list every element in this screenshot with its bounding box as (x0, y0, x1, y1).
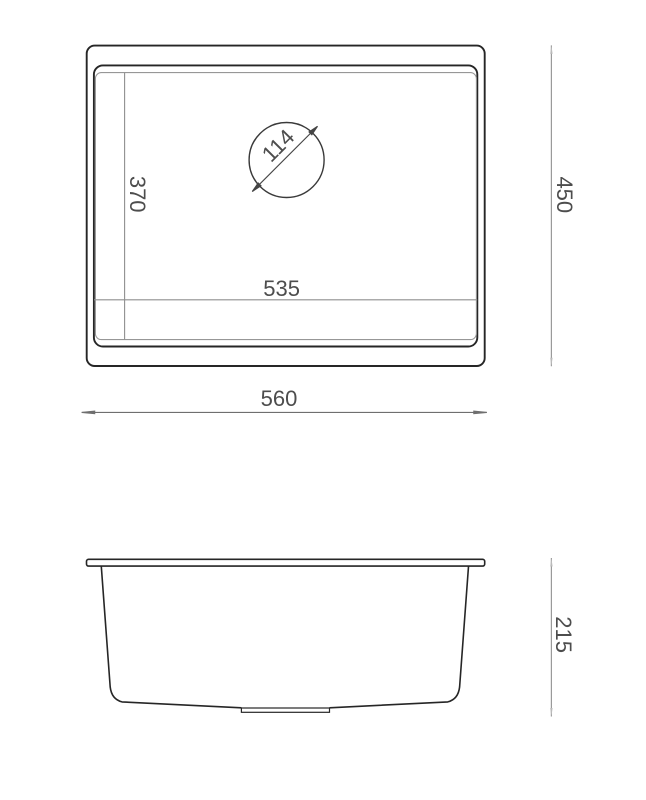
svg-text:560: 560 (261, 386, 298, 411)
svg-text:370: 370 (125, 176, 150, 213)
svg-text:450: 450 (552, 176, 577, 213)
svg-text:535: 535 (263, 276, 300, 301)
svg-text:215: 215 (551, 616, 576, 653)
